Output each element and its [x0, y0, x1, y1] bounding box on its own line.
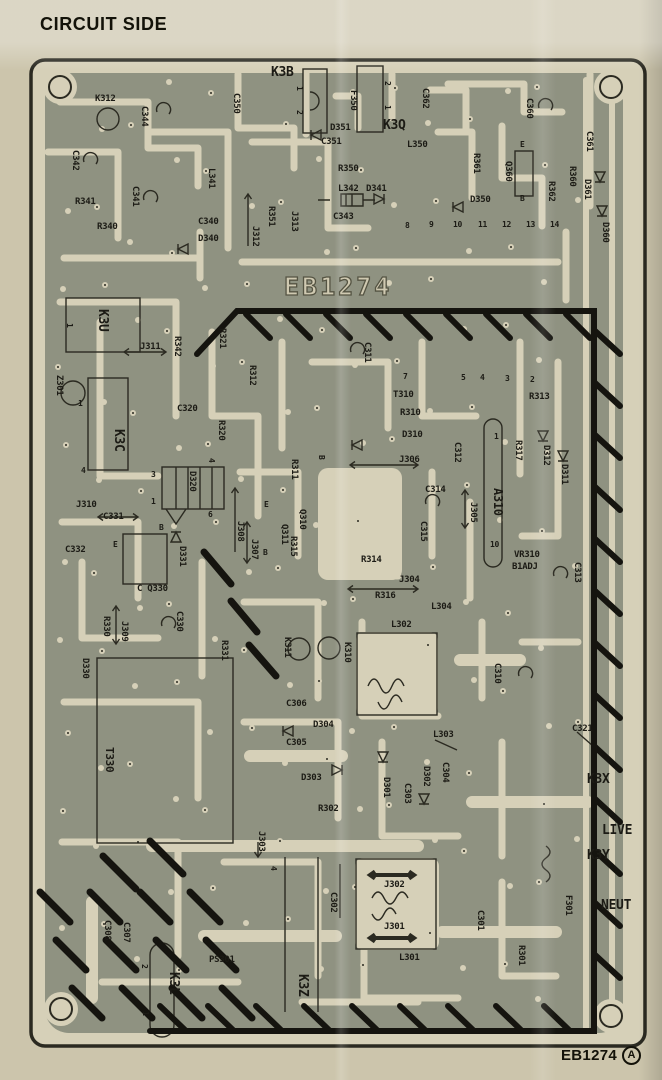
footer-board-id: EB1274	[561, 1047, 617, 1064]
page-title: CIRCUIT SIDE	[40, 14, 167, 35]
board-footer: EB1274 A	[561, 1046, 641, 1065]
scanned-pcb-page: CIRCUIT SIDE	[0, 0, 662, 1080]
footer-revision-badge: A	[622, 1046, 641, 1065]
pcb-artwork	[0, 0, 662, 1080]
